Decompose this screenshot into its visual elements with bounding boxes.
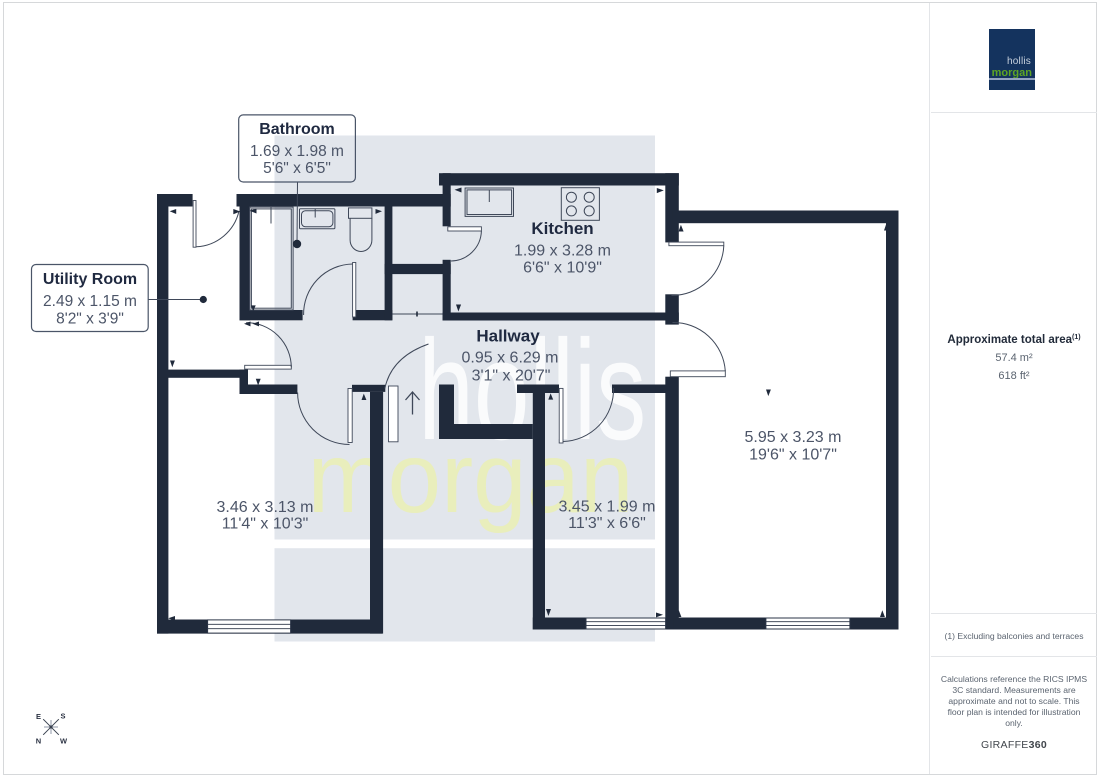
svg-text:W: W xyxy=(60,737,68,746)
svg-text:S: S xyxy=(60,712,65,721)
svg-text:6'6" x 10'9": 6'6" x 10'9" xyxy=(523,260,602,277)
svg-text:1.99 x 3.28 m: 1.99 x 3.28 m xyxy=(514,242,611,259)
svg-text:Utility Room: Utility Room xyxy=(43,271,137,288)
svg-text:E: E xyxy=(36,712,41,721)
svg-text:2.49 x 1.15 m: 2.49 x 1.15 m xyxy=(43,293,137,310)
svg-text:19'6" x 10'7": 19'6" x 10'7" xyxy=(749,447,837,464)
svg-text:3'1" x 20'7": 3'1" x 20'7" xyxy=(472,368,551,385)
svg-text:Bathroom: Bathroom xyxy=(259,121,335,138)
svg-text:8'2" x 3'9": 8'2" x 3'9" xyxy=(56,311,124,328)
svg-text:5.95 x 3.23 m: 5.95 x 3.23 m xyxy=(745,429,842,446)
svg-text:1.69 x 1.98 m: 1.69 x 1.98 m xyxy=(250,143,344,160)
svg-text:3.45 x 1.99 m: 3.45 x 1.99 m xyxy=(559,499,656,516)
svg-text:11'4" x 10'3": 11'4" x 10'3" xyxy=(222,516,309,533)
svg-text:N: N xyxy=(36,737,41,746)
svg-text:11'3" x 6'6": 11'3" x 6'6" xyxy=(568,515,646,532)
svg-text:0.95 x 6.29 m: 0.95 x 6.29 m xyxy=(462,350,559,367)
svg-text:Kitchen: Kitchen xyxy=(531,219,593,238)
svg-text:Hallway: Hallway xyxy=(476,327,540,346)
svg-text:3.46 x 3.13 m: 3.46 x 3.13 m xyxy=(217,499,314,516)
svg-text:5'6" x 6'5": 5'6" x 6'5" xyxy=(263,160,331,177)
